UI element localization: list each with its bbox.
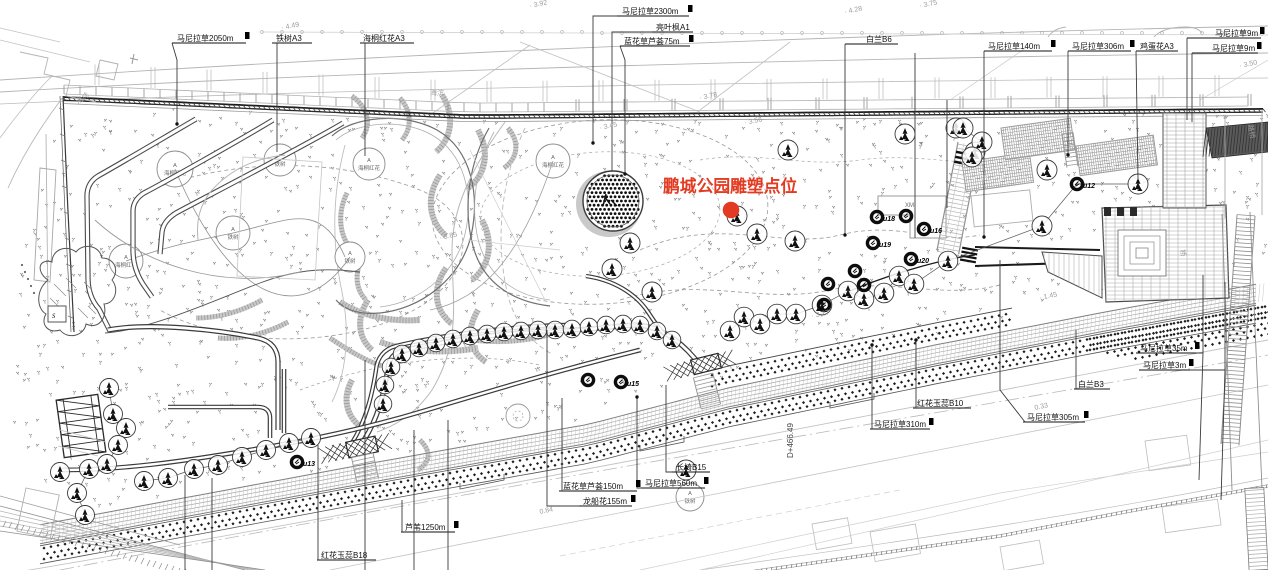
svg-text:马尼拉草560m: 马尼拉草560m [645, 478, 697, 488]
svg-text:u20: u20 [917, 258, 929, 265]
svg-text:A: A [231, 227, 235, 233]
svg-text:红花玉蕊B18: 红花玉蕊B18 [321, 550, 368, 560]
svg-text:A: A [348, 251, 352, 257]
svg-text:鹏城公园雕塑点位: 鹏城公园雕塑点位 [663, 176, 797, 196]
svg-text:u15: u15 [627, 381, 639, 388]
svg-text:马尼拉草35m: 马尼拉草35m [1140, 343, 1188, 353]
svg-text:龙船花155m: 龙船花155m [583, 496, 627, 506]
svg-text:u16: u16 [930, 228, 942, 235]
svg-text:马尼拉草310m: 马尼拉草310m [874, 419, 926, 429]
svg-text:D+466.49: D+466.49 [786, 423, 795, 458]
svg-text:红花玉蕊B10: 红花玉蕊B10 [917, 398, 964, 408]
svg-text:u19: u19 [879, 242, 891, 249]
svg-text:芦苇1250m: 芦苇1250m [405, 522, 446, 532]
svg-text:s: s [52, 310, 56, 320]
svg-text:海滨: 海滨 [430, 88, 444, 97]
svg-text:鸡蛋花A3: 鸡蛋花A3 [1140, 41, 1174, 51]
svg-text:亮叶枫A1: 亮叶枫A1 [656, 22, 690, 32]
svg-text:马尼拉草2050m: 马尼拉草2050m [177, 33, 234, 43]
svg-text:蓝花草芦荟75m: 蓝花草芦荟75m [624, 36, 680, 46]
svg-text:马尼拉草9m: 马尼拉草9m [1215, 28, 1258, 38]
svg-text:白兰B3: 白兰B3 [1078, 379, 1104, 389]
svg-text:u13: u13 [303, 461, 315, 468]
svg-text:XM: XM [905, 203, 914, 209]
svg-text:铁树A3: 铁树A3 [276, 33, 302, 43]
svg-text:海桐红花: 海桐红花 [542, 161, 565, 169]
svg-text:铁树: 铁树 [344, 257, 356, 265]
svg-text:u18: u18 [883, 216, 895, 223]
svg-text:马尼拉草305m: 马尼拉草305m [1027, 412, 1079, 422]
svg-text:蓝花草芦荟150m: 蓝花草芦荟150m [563, 481, 623, 491]
svg-text:马尼拉草3m: 马尼拉草3m [1143, 360, 1186, 370]
svg-text:海桐红花A3: 海桐红花A3 [363, 33, 405, 43]
svg-text:A: A [551, 155, 555, 161]
svg-text:白兰B6: 白兰B6 [866, 34, 892, 44]
svg-text:海桐红花: 海桐红花 [358, 164, 381, 172]
svg-text:马尼拉草140m: 马尼拉草140m [988, 41, 1040, 51]
svg-text:A: A [173, 163, 177, 169]
svg-text:马尼拉草9m: 马尼拉草9m [1212, 43, 1255, 53]
svg-text:马尼拉草306m: 马尼拉草306m [1072, 41, 1124, 51]
svg-text:长椅B15: 长椅B15 [676, 462, 707, 472]
svg-text:A: A [688, 491, 692, 497]
svg-text:u12: u12 [1083, 183, 1095, 190]
svg-text:马尼拉草2300m: 马尼拉草2300m [622, 6, 679, 16]
svg-text:A: A [367, 158, 371, 164]
